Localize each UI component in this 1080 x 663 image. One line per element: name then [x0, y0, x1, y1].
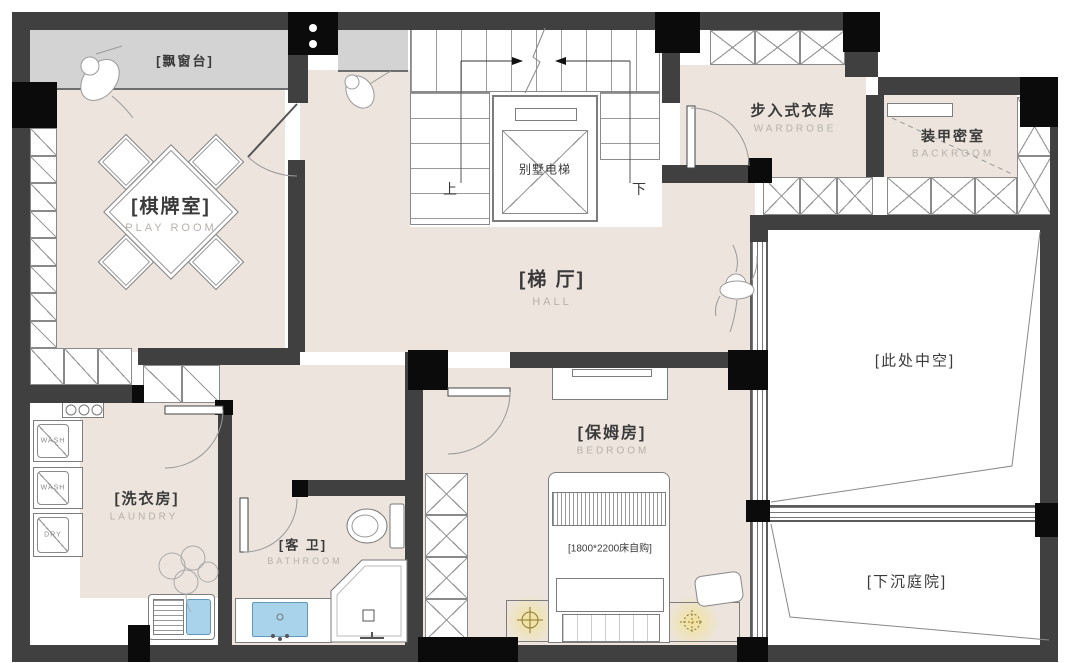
elevator-label: 别墅电梯 — [519, 161, 571, 178]
void-label: [此处中空] — [875, 350, 955, 371]
backroom-label-en: BACKROOM — [912, 149, 994, 160]
wardrobe-label: 步入式衣库 — [750, 100, 835, 121]
stairs-up-label: 上 — [443, 179, 459, 199]
pillow — [694, 571, 744, 607]
toilet — [347, 504, 404, 548]
laundry-label: [洗衣房] — [115, 488, 180, 509]
faucet-dots — [271, 614, 289, 641]
bay-window-label: [飘窗台] — [156, 51, 214, 70]
backroom-label: 装甲密室 — [921, 126, 985, 146]
bedroom-label-en: BEDROOM — [577, 446, 650, 457]
overlay-drawing — [0, 0, 1080, 663]
column-dot — [309, 24, 317, 32]
laundry-door — [165, 406, 223, 468]
stairs-down-label: 下 — [632, 179, 648, 199]
playroom-door — [248, 104, 297, 176]
bed-note-label: [1800*2200床自购] — [568, 540, 652, 555]
detergent-circles — [66, 405, 102, 415]
hall-label: [梯 厅] — [519, 265, 585, 292]
stair-arrow-down-head — [555, 57, 566, 65]
bathroom-label: [客 卫] — [279, 535, 327, 554]
person-figure-stairs — [340, 71, 391, 113]
bathroom-label-en: BATHROOM — [267, 556, 342, 566]
lamp-symbol-right — [680, 610, 704, 634]
playroom-label-en: PLAY ROOM — [125, 222, 216, 234]
shower — [331, 560, 407, 642]
playroom-label: [棋牌室] — [131, 192, 211, 219]
plant — [159, 546, 218, 612]
stair-arrow-up-head — [512, 57, 523, 65]
column-dot — [309, 40, 317, 48]
wardrobe-label-en: WARDROBE — [754, 124, 837, 135]
floor-plan: [飘窗台] [棋牌室] PLAY ROOM 别墅电梯 上 下 步入式衣库 WAR… — [0, 0, 1080, 663]
bedroom-label: [保姆房] — [578, 419, 647, 443]
bedroom-door — [448, 388, 510, 454]
lamp-symbol-left — [517, 607, 543, 633]
person-figure-hall — [716, 245, 758, 332]
hall-label-en: HALL — [532, 296, 572, 308]
person-figure-bay — [73, 46, 133, 118]
washer-1-label: WASH — [41, 438, 66, 445]
laundry-label-en: LAUNDRY — [110, 512, 179, 523]
dryer-label: DRY — [44, 532, 62, 539]
stair-break-line — [525, 28, 545, 93]
wardrobe-door — [687, 106, 749, 168]
washer-2-label: WASH — [41, 485, 66, 492]
courtyard-label: [下沉庭院] — [867, 571, 947, 592]
